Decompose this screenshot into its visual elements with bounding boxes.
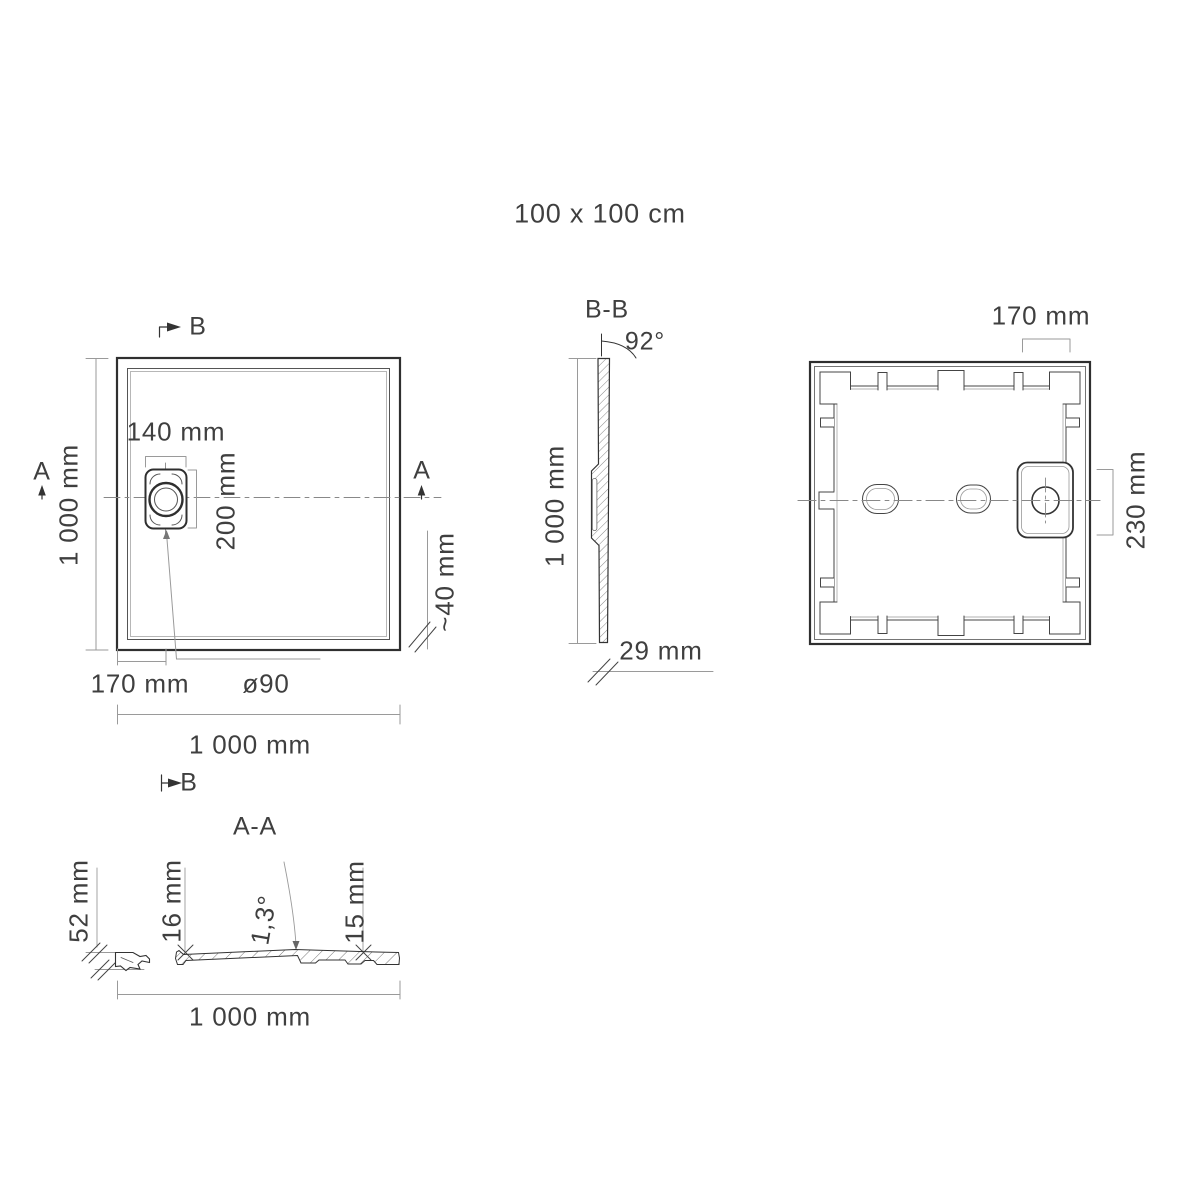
dim-1000-aa [118,981,401,999]
arrow-up-icon [38,485,46,496]
slope-arrowhead [293,941,300,950]
section-aa-title: A-A [233,813,277,842]
page-title: 100 x 100 cm [514,199,686,230]
section-marker-a-left [38,485,46,499]
dim-label-1000-bottom: 1 000 mm [189,730,311,761]
arrow-right-icon [167,323,181,332]
dim-label-16: 16 mm [157,859,188,942]
dim-1000-left [86,359,108,651]
section-bb-title: B-B [585,296,629,325]
section-marker-b-top [160,323,182,338]
dim-label-52: 52 mm [64,859,95,942]
dim-label-29: 29 mm [619,636,702,667]
dim-label-230: 230 mm [1121,451,1152,550]
dim-label-1000-bb: 1 000 mm [540,445,571,567]
aa-drain-trap [116,953,150,971]
dim-label-170: 170 mm [91,669,190,700]
dim-170-bottom-view [1023,339,1071,352]
dim-170 [118,649,167,665]
dim-label-200: 200 mm [211,452,242,551]
section-letter-a-left: A [33,458,50,487]
leader-slope-arc [284,862,296,945]
plan-view [38,323,441,792]
dim-label-92deg: 92° [625,328,665,357]
technical-drawing-canvas [0,0,1200,1200]
dim-label-40: ~40 mm [430,532,461,631]
technical-drawing-page: 100 x 100 cm B B A A 140 mm 200 mm 1 000… [0,0,1200,1200]
dim-1000-bottom [118,705,401,724]
bottom-view [798,339,1113,644]
section-letter-a-right: A [413,457,430,486]
arrow-up-icon [418,485,426,496]
bb-drain-recess [592,479,597,531]
dim-label-1000-aa: 1 000 mm [189,1002,311,1033]
section-marker-b-bottom [162,775,183,791]
dim-label-170-bottom-view: 170 mm [992,301,1091,332]
dim-label-1000-left: 1 000 mm [54,444,85,566]
dim-230 [1097,470,1113,536]
plan-drain [146,470,187,529]
section-marker-a-right [418,485,426,499]
section-letter-b-top: B [189,313,206,342]
dim-label-15: 15 mm [340,860,371,943]
dim-label-drain-diameter: ø90 [242,669,289,700]
aa-profile [176,950,400,965]
dim-label-140: 140 mm [127,417,226,448]
section-letter-b-bottom: B [180,769,197,798]
section-bb-view [569,334,713,685]
